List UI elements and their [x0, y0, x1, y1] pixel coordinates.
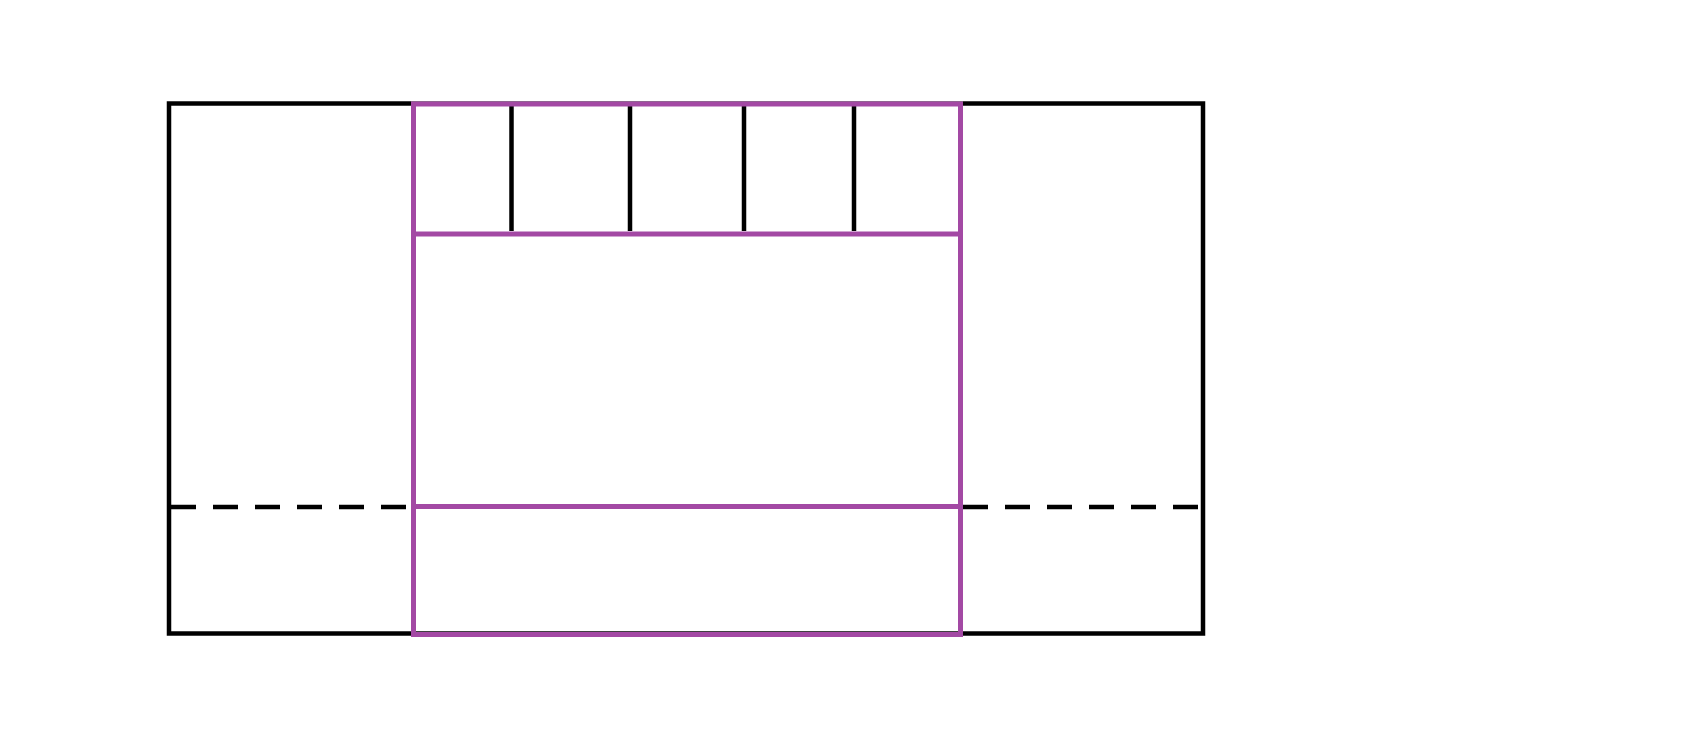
drawing-canvas — [0, 0, 1685, 749]
inner-rectangle — [414, 104, 961, 635]
outer-rectangle — [169, 104, 1203, 634]
drawing-page — [0, 0, 1685, 749]
